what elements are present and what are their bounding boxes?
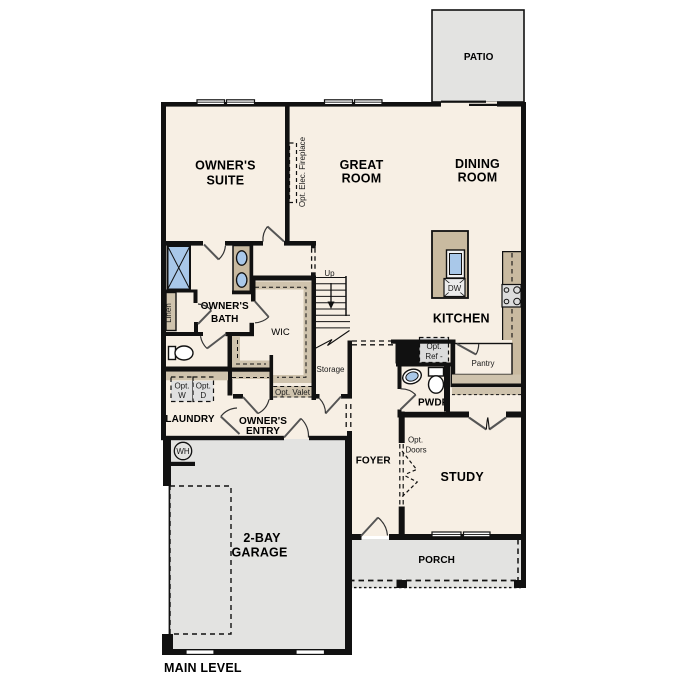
svg-text:ROOM: ROOM <box>342 172 382 186</box>
svg-text:LAUNDRY: LAUNDRY <box>165 414 214 425</box>
svg-text:WH: WH <box>176 447 190 456</box>
svg-text:Doors: Doors <box>405 446 426 455</box>
svg-text:Pantry: Pantry <box>471 359 494 368</box>
svg-text:Opt.: Opt. <box>408 436 423 445</box>
svg-text:WIC: WIC <box>271 327 290 338</box>
svg-text:FOYER: FOYER <box>356 455 392 466</box>
svg-text:PORCH: PORCH <box>418 555 455 566</box>
svg-text:KITCHEN: KITCHEN <box>433 312 490 326</box>
svg-text:ENTRY: ENTRY <box>246 426 280 437</box>
svg-text:MAIN LEVEL: MAIN LEVEL <box>164 661 242 675</box>
svg-text:Ref -: Ref - <box>425 352 443 361</box>
svg-text:Storage: Storage <box>316 365 345 374</box>
svg-text:BATH: BATH <box>211 314 238 325</box>
svg-text:Opt. Valet: Opt. Valet <box>275 388 311 397</box>
svg-text:D: D <box>200 391 206 400</box>
svg-text:DW: DW <box>448 284 462 293</box>
svg-text:DINING: DINING <box>455 157 500 171</box>
svg-text:2-BAY: 2-BAY <box>243 531 281 545</box>
svg-text:OWNER'S: OWNER'S <box>195 159 256 173</box>
svg-text:STUDY: STUDY <box>441 470 485 484</box>
svg-text:Linen: Linen <box>164 303 173 323</box>
svg-text:Opt.: Opt. <box>196 382 211 391</box>
svg-text:GREAT: GREAT <box>340 158 384 172</box>
svg-text:OWNER'S: OWNER'S <box>201 301 249 312</box>
svg-text:GARAGE: GARAGE <box>231 546 287 560</box>
svg-text:Opt.: Opt. <box>174 382 189 391</box>
svg-text:Up: Up <box>324 269 335 278</box>
svg-text:PATIO: PATIO <box>464 52 494 63</box>
svg-text:SUITE: SUITE <box>206 174 244 188</box>
svg-text:Opt. Elec. Fireplace: Opt. Elec. Fireplace <box>298 136 307 207</box>
svg-text:ROOM: ROOM <box>458 171 498 185</box>
svg-text:W: W <box>178 391 186 400</box>
